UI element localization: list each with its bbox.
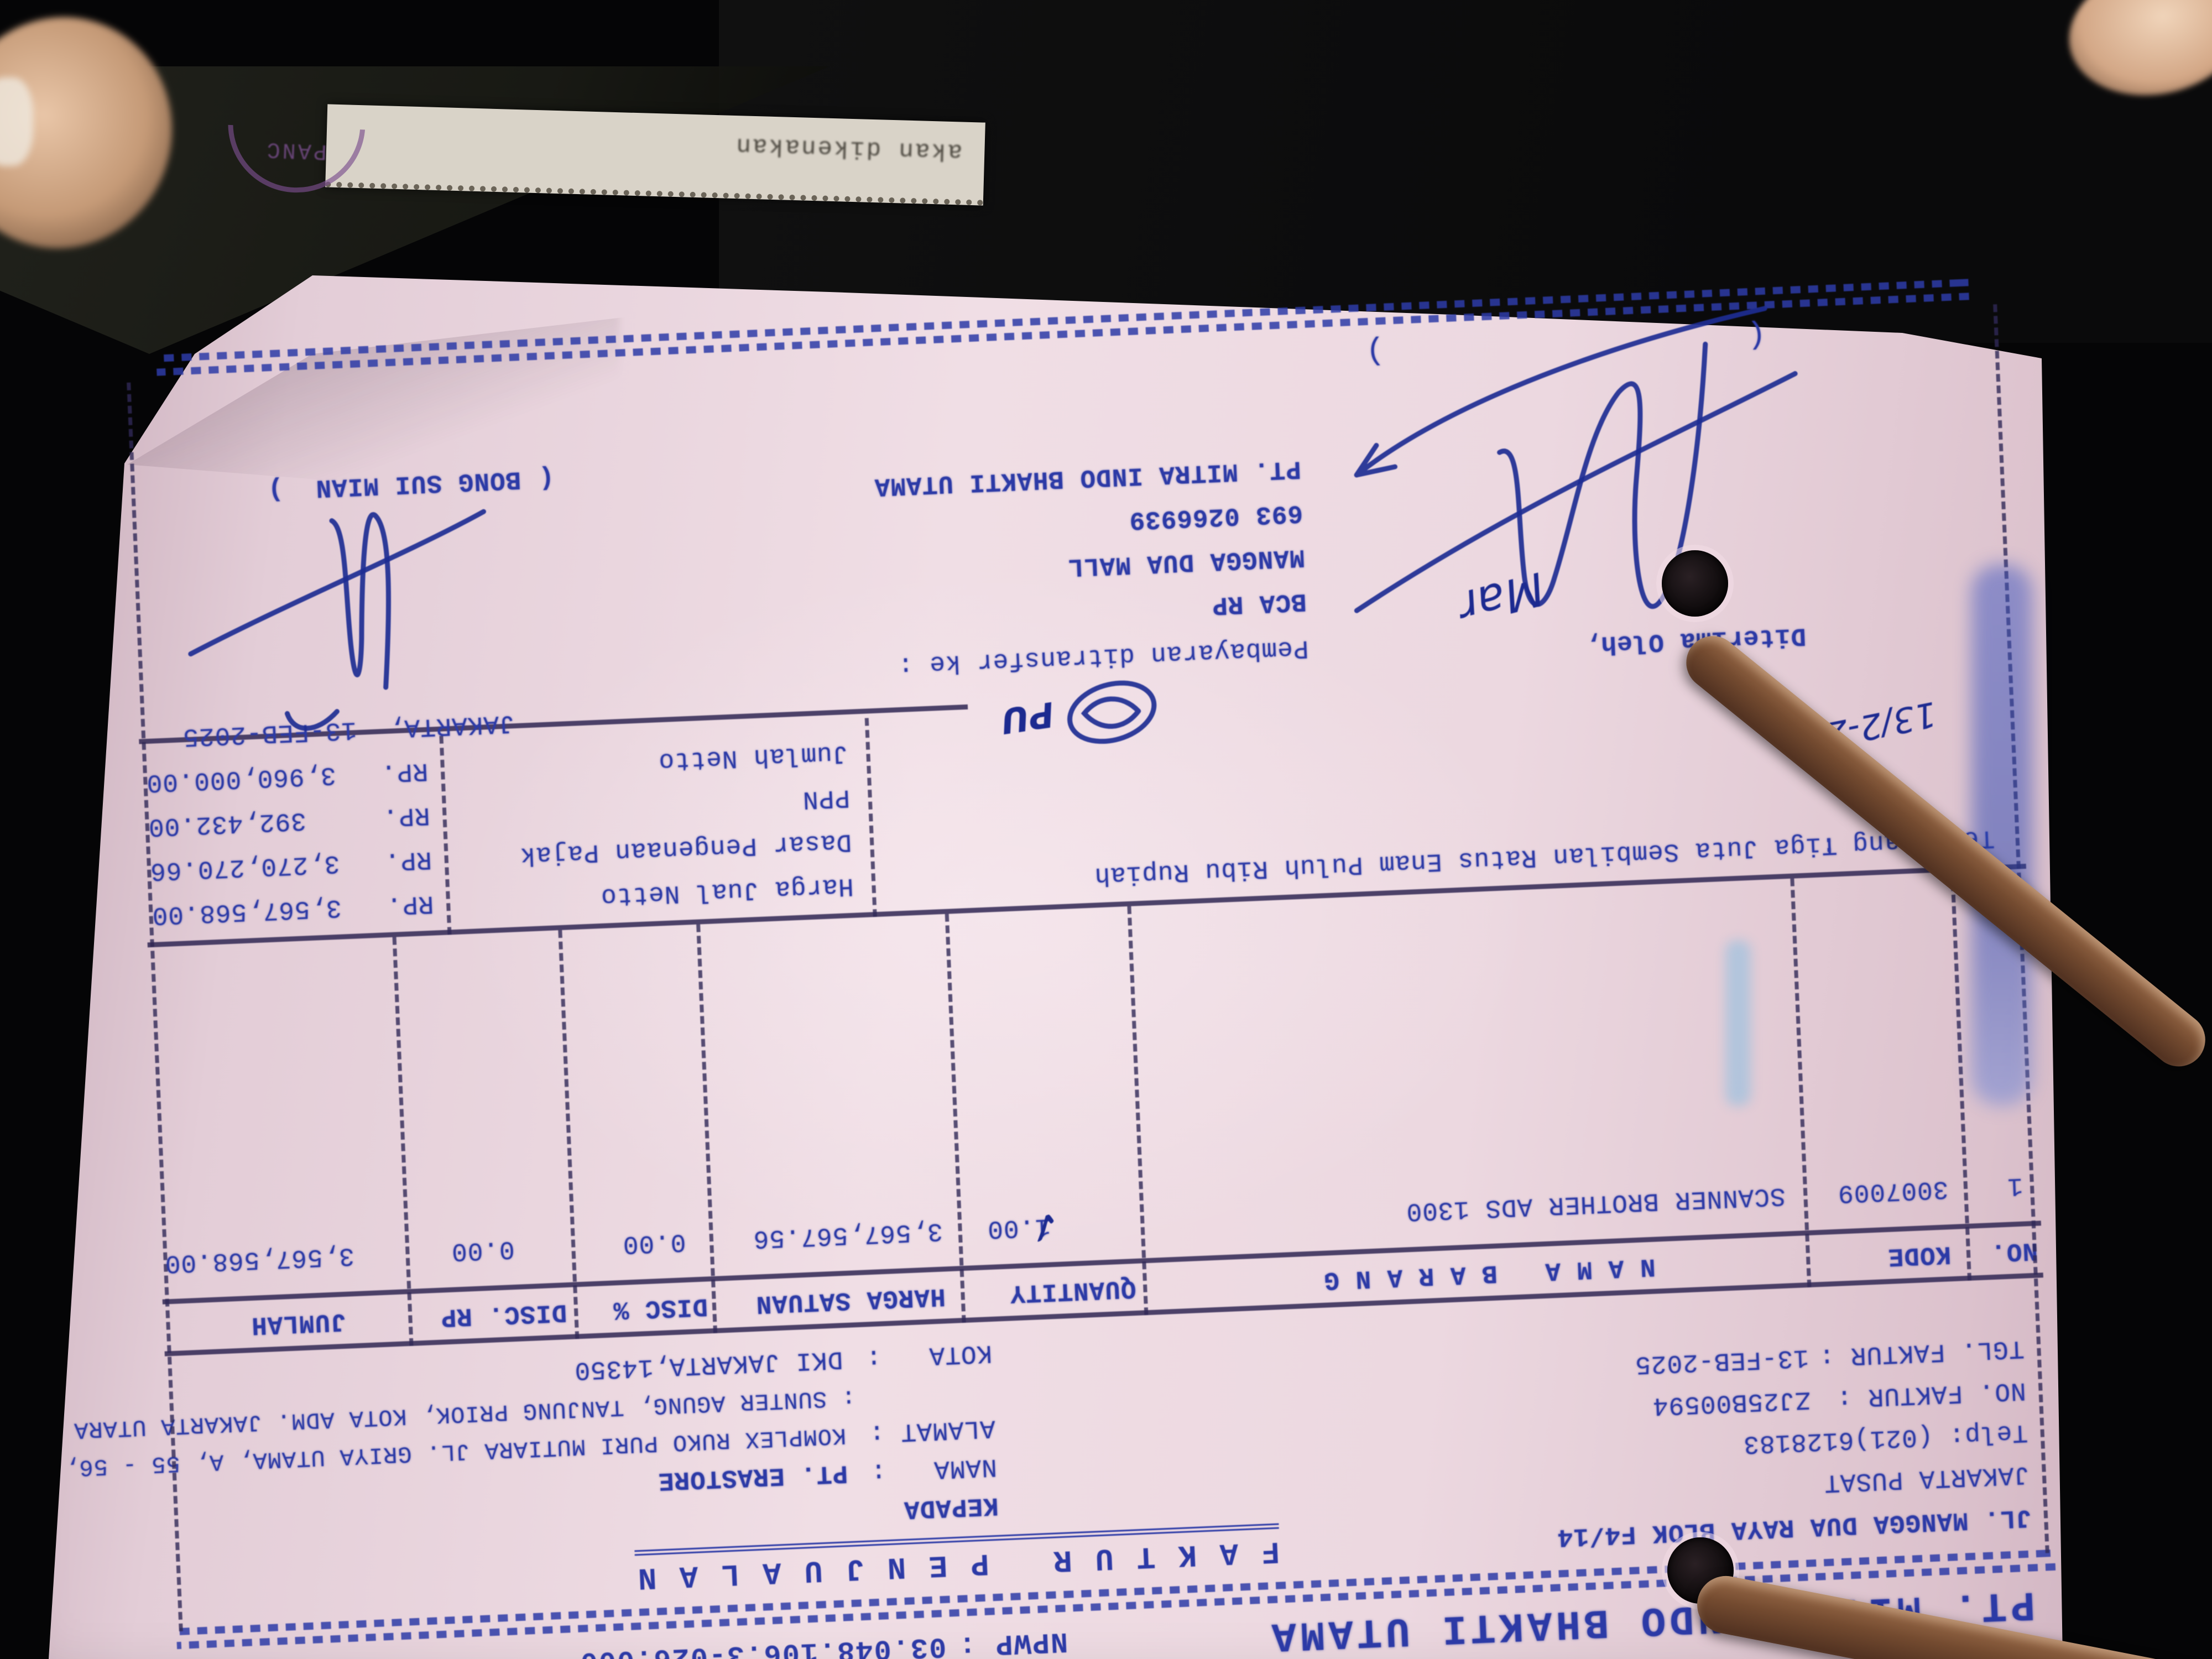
handwritten-pu: PU — [998, 694, 1056, 742]
blue-ink-smudge — [1971, 564, 2032, 1106]
background-sheet-text: akan dikenakan — [734, 131, 963, 165]
fingernail-highlight — [0, 77, 33, 166]
pu-circle-scribble — [1063, 674, 1161, 751]
stamp-text: PANC — [264, 136, 327, 163]
punch-hole-top — [1662, 550, 1728, 617]
blue-ink-streak — [1725, 940, 1751, 1106]
invoice-document: PT. MITRA INDO BHAKTI UTAMA NPWP : 03.04… — [121, 221, 2058, 1659]
signature-bong — [332, 514, 393, 690]
handwriting-ink-layer — [121, 221, 2058, 1659]
pu-scribble — [1084, 698, 1139, 728]
signature-received-flourish — [1350, 309, 1771, 475]
signature-bong-tick — [287, 712, 337, 729]
round-stamp-partial: PANC — [220, 125, 366, 202]
